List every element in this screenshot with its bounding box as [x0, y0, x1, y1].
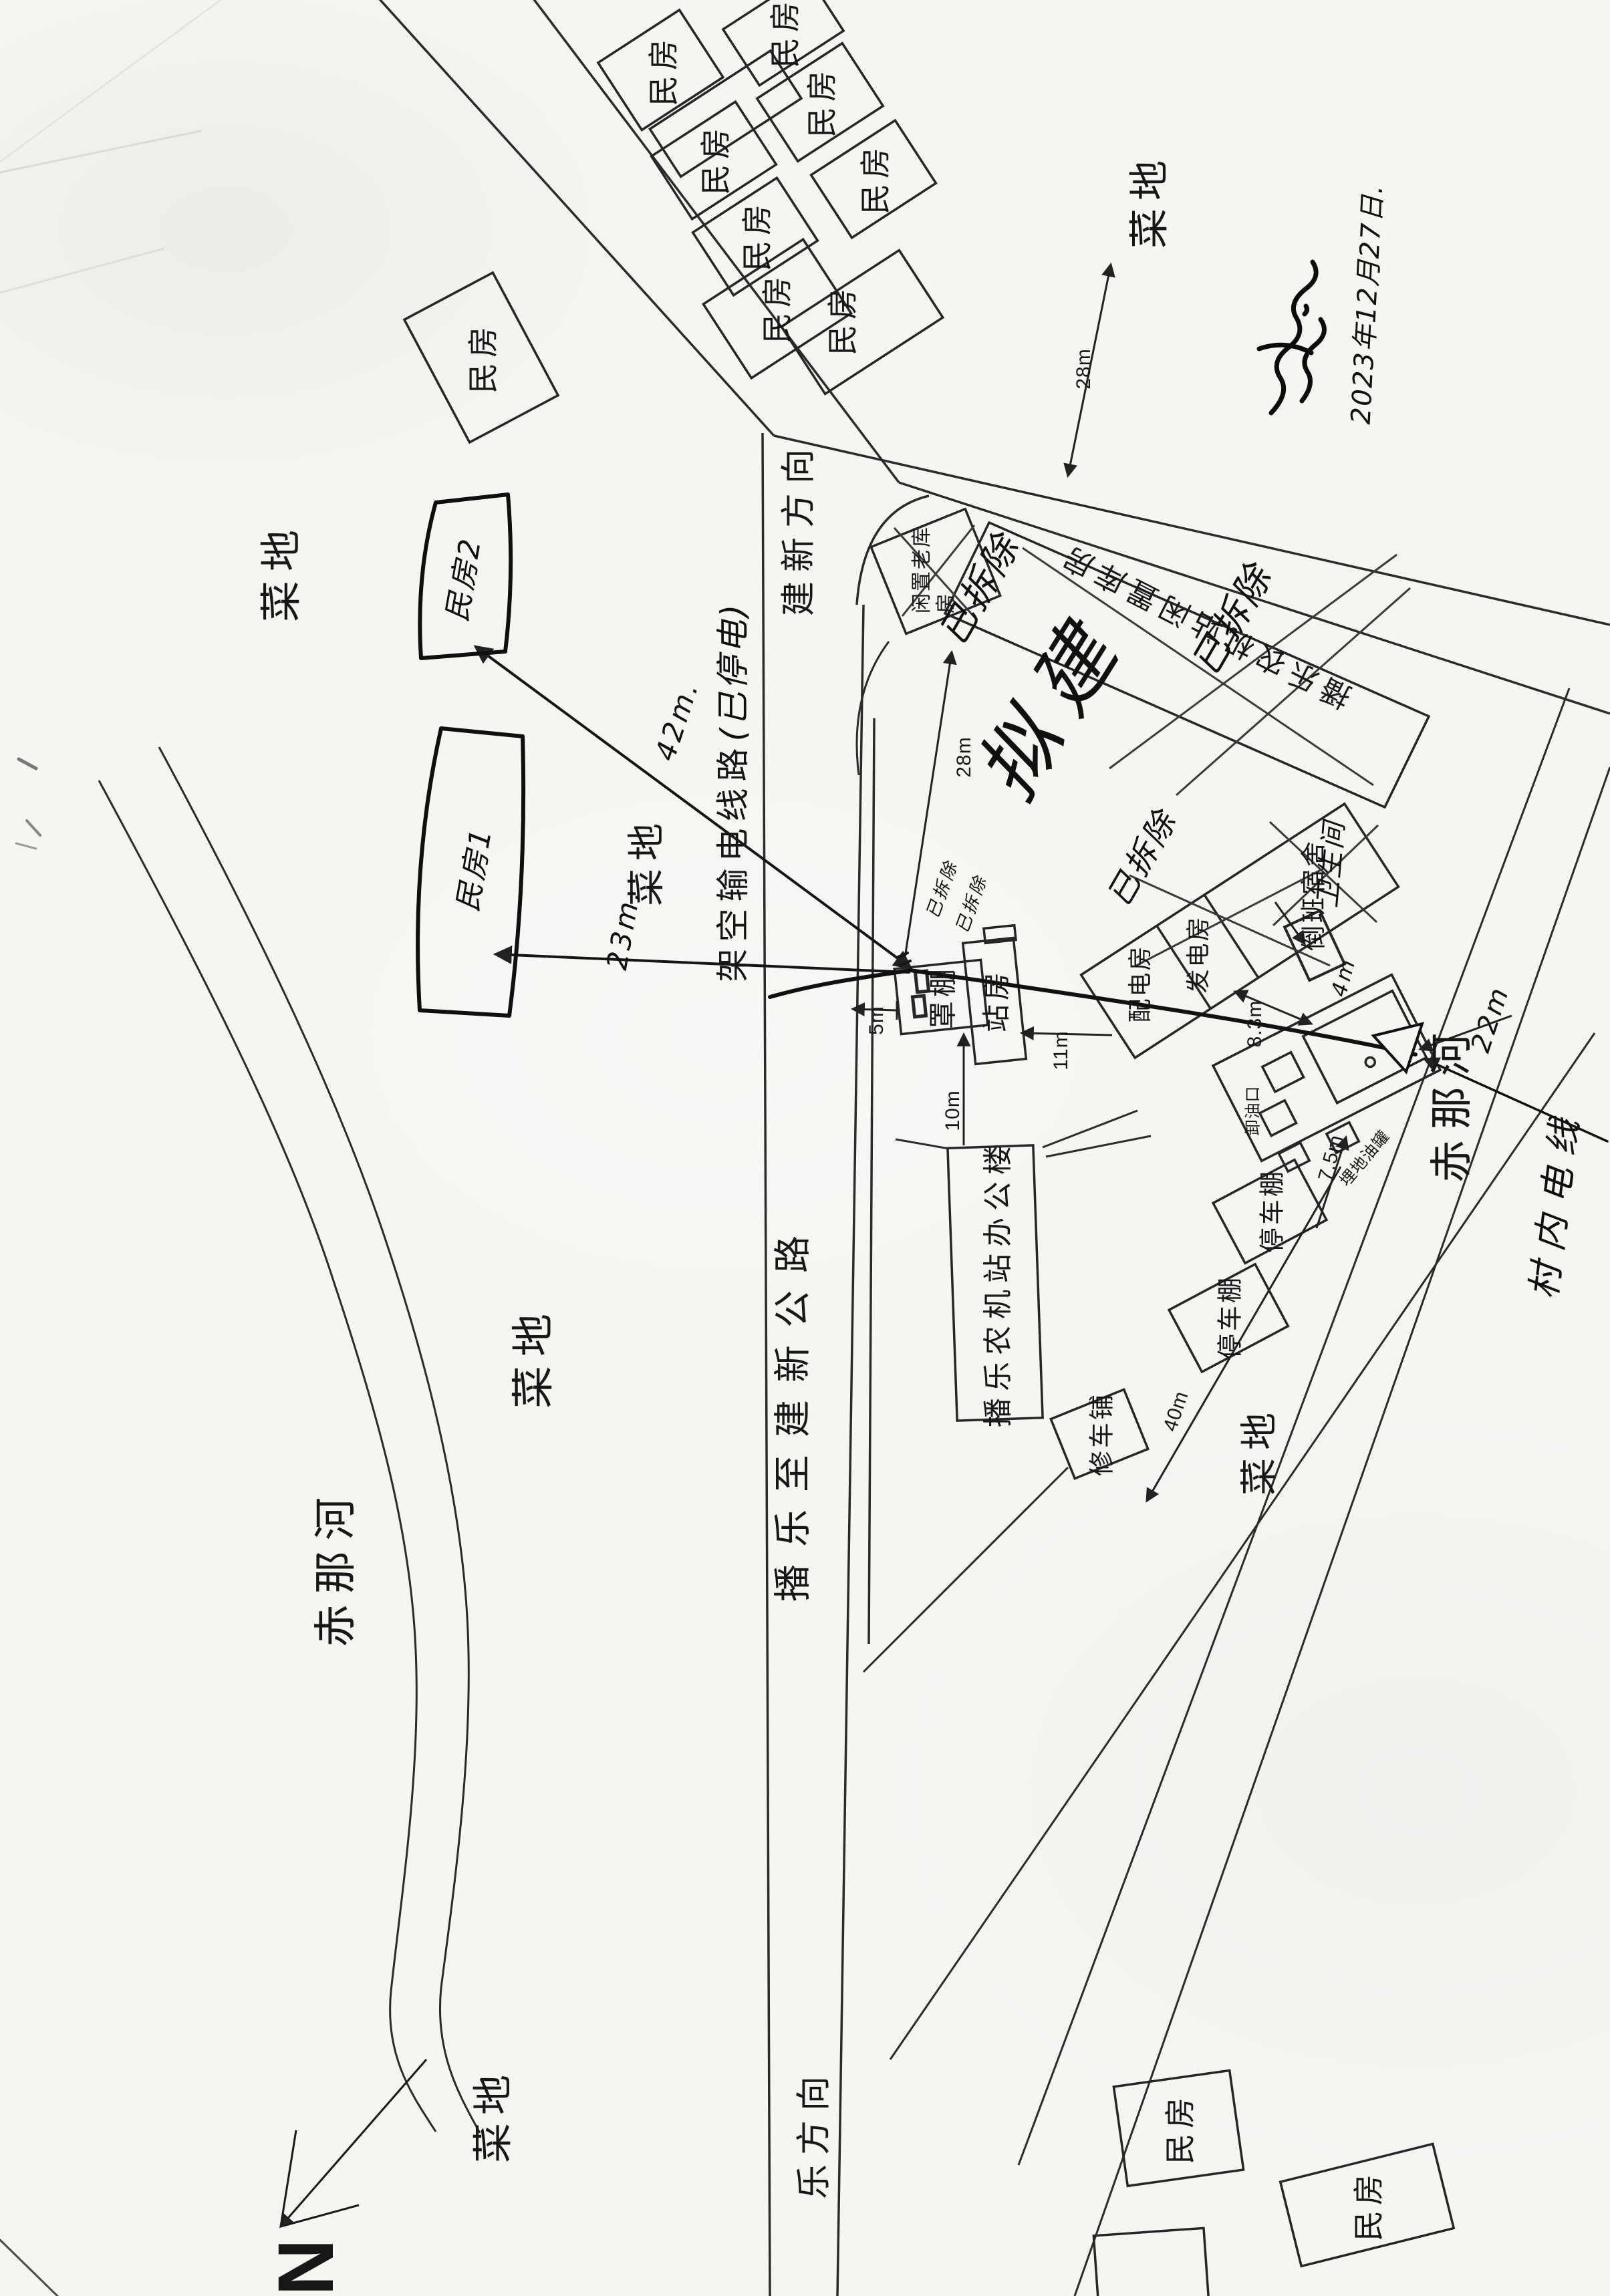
river-label: 赤那河: [301, 1487, 363, 1647]
dim-5m: 5m: [865, 1006, 888, 1035]
parking-shed-label: 停车棚: [1210, 1275, 1246, 1359]
dim-11m: 11m: [1050, 1030, 1073, 1070]
station-house-label: 站房: [974, 968, 1015, 1032]
house-label: 民房: [1156, 2092, 1200, 2164]
residential-house-outlines: [404, 0, 1454, 2296]
canopy-label: 罩棚: [921, 965, 962, 1029]
house-label: 民房: [640, 34, 684, 106]
house-label: 民房: [692, 123, 736, 195]
field-label: 菜地: [499, 1304, 561, 1409]
field-label: 菜地: [461, 2067, 519, 2163]
parking-shed-label: 停车棚: [1252, 1169, 1289, 1253]
signature-scribble: [1259, 262, 1324, 413]
house-label: 民房: [733, 199, 777, 271]
north-letter: N: [261, 2239, 352, 2295]
power-line-name: 架空输电线路: [714, 742, 752, 982]
house-label: 民房: [798, 65, 842, 138]
house-label: 民房: [819, 283, 863, 355]
dim-8-3m: 8.3m: [1244, 1000, 1266, 1048]
river-left: [99, 747, 480, 2133]
repair-shop-label: 修车铺: [1081, 1392, 1118, 1476]
house-label: 民房: [761, 0, 805, 68]
scanned-site-plan: 民房 民房 民房 民房 民房 民房 民房 民房 民房 民房 民房 菜地 菜地 菜…: [0, 0, 1610, 2296]
direction-le-label: 乐方向: [786, 2067, 836, 2199]
north-arrow: [281, 2059, 426, 2227]
field-label: 菜地: [247, 521, 307, 622]
dim-10m: 10m: [942, 1090, 964, 1131]
oil-unloading-label: 卸油口: [1240, 1086, 1263, 1136]
house-label: 民房: [1345, 2169, 1389, 2241]
office-label: 播乐农机站办公楼: [974, 1139, 1017, 1427]
distribution-room-label: 配电房: [1121, 944, 1156, 1022]
power-line-label: 架空输电线路(已停电): [706, 601, 755, 982]
scan-artifacts: [0, 0, 221, 2296]
power-line-status-note: (已停电): [714, 601, 753, 741]
field-label: 菜地: [1117, 152, 1176, 249]
generator-room-label: 发电房: [1179, 915, 1214, 993]
house-label: 民房: [851, 142, 896, 214]
highway-label: 播乐至建新公路: [763, 1218, 817, 1602]
house-label: 民房: [459, 321, 503, 394]
idle-old-warehouse-line1: 闲置老库: [911, 525, 933, 613]
toilet-note: 卫生间: [1305, 818, 1351, 909]
field-label: 菜地: [1230, 1405, 1284, 1495]
house-label: 民房: [753, 271, 797, 343]
dim-28m: 28m: [1073, 348, 1095, 389]
direction-jianxin-label: 建新方向: [771, 440, 821, 616]
